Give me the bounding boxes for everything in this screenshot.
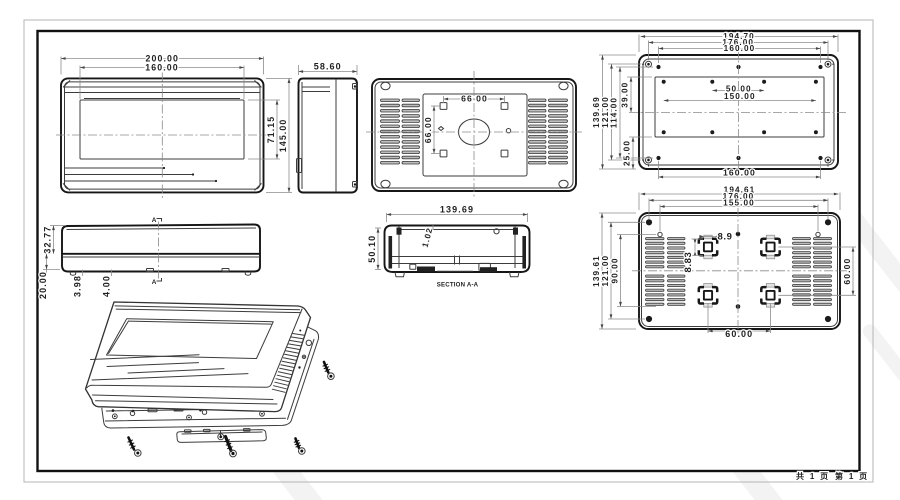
svg-text:139.61: 139.61 (592, 255, 601, 287)
svg-text:8.9: 8.9 (717, 232, 732, 243)
svg-text:114.00: 114.00 (610, 97, 619, 128)
svg-text:8.83: 8.83 (683, 252, 694, 273)
svg-text:160.00: 160.00 (723, 168, 756, 178)
svg-text:121.00: 121.00 (601, 255, 610, 287)
svg-text:160.00: 160.00 (145, 63, 179, 73)
svg-text:160.00: 160.00 (724, 44, 756, 53)
svg-text:32.77: 32.77 (43, 226, 53, 254)
svg-text:58.60: 58.60 (314, 62, 342, 72)
svg-text:150.00: 150.00 (724, 92, 756, 101)
svg-text:SECTION A-A: SECTION A-A (437, 282, 479, 289)
svg-text:145.00: 145.00 (278, 119, 288, 153)
svg-text:60.00: 60.00 (725, 329, 753, 339)
svg-text:A: A (152, 217, 157, 224)
svg-text:50.10: 50.10 (367, 235, 377, 263)
svg-text:第 1 页: 第 1 页 (835, 471, 869, 481)
svg-text:4.00: 4.00 (102, 275, 112, 297)
svg-text:3.98: 3.98 (73, 275, 83, 297)
svg-text:139.69: 139.69 (440, 205, 474, 215)
svg-text:A: A (152, 279, 157, 286)
svg-text:39.00: 39.00 (621, 82, 630, 108)
svg-text:90.00: 90.00 (611, 258, 620, 284)
svg-text:60.00: 60.00 (842, 258, 852, 285)
svg-text:139.69: 139.69 (592, 96, 601, 128)
svg-text:155.00: 155.00 (723, 198, 755, 207)
svg-text:66: 66 (461, 94, 473, 104)
svg-text:71.15: 71.15 (266, 116, 276, 144)
svg-text:25.00: 25.00 (623, 140, 632, 166)
svg-text:00: 00 (476, 94, 488, 104)
svg-text:20.00: 20.00 (38, 271, 48, 299)
svg-text:共 1 页: 共 1 页 (796, 471, 830, 481)
svg-text:66.00: 66.00 (423, 116, 433, 143)
